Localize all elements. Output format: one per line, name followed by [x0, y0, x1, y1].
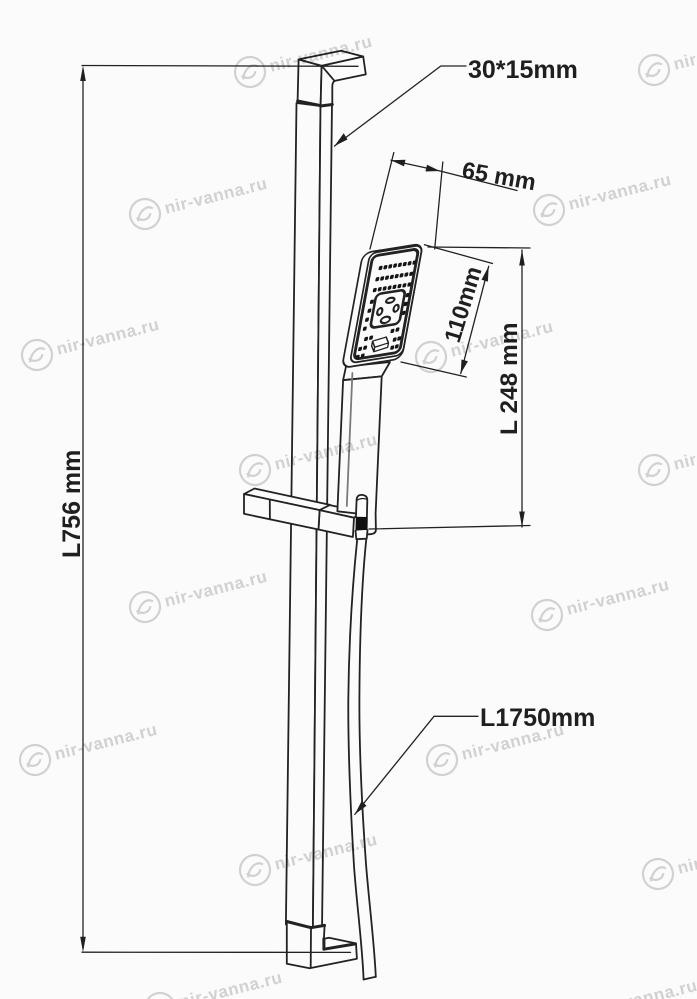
svg-text:30*15mm: 30*15mm: [468, 56, 578, 84]
svg-text:L756 mm: L756 mm: [58, 450, 86, 558]
